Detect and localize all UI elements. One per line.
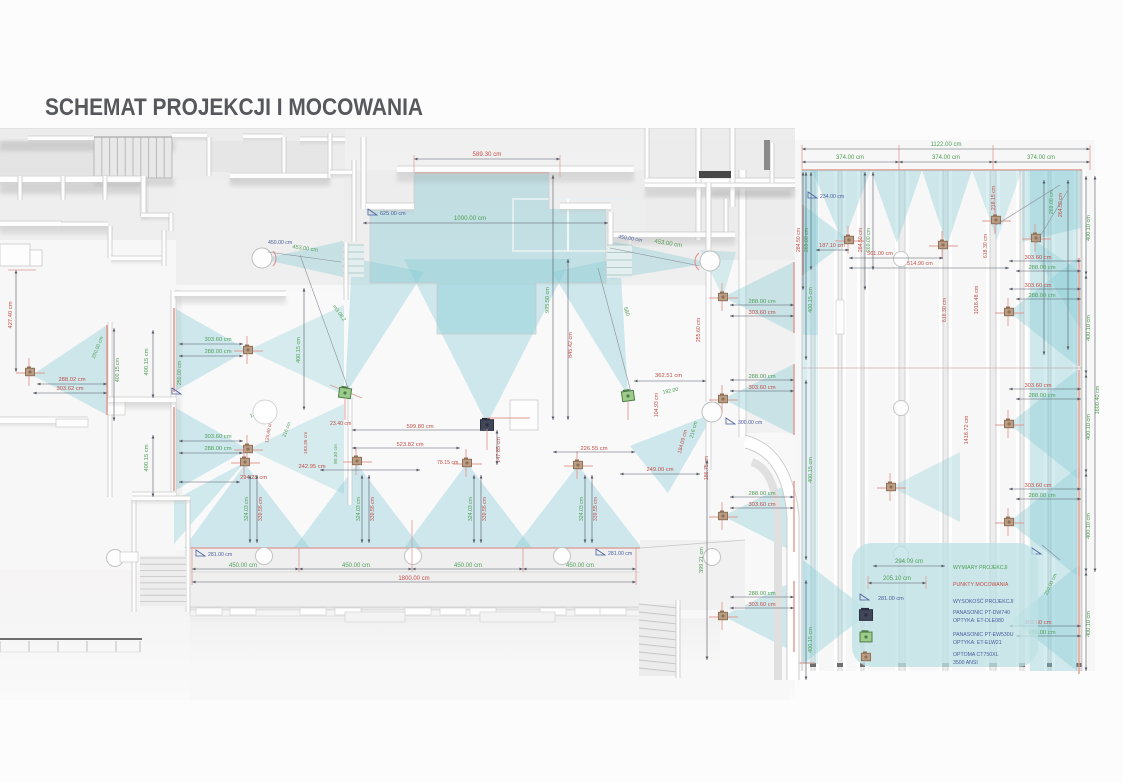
svg-text:104.93 cm: 104.93 cm	[654, 393, 660, 417]
svg-text:362.51 cm: 362.51 cm	[655, 373, 682, 379]
svg-text:599.80 cm: 599.80 cm	[406, 424, 433, 430]
svg-text:303.60 cm: 303.60 cm	[204, 434, 231, 440]
svg-text:205.10 cm: 205.10 cm	[883, 576, 911, 582]
svg-text:303.60 cm: 303.60 cm	[1024, 255, 1051, 261]
svg-text:294.25 cm: 294.25 cm	[240, 475, 267, 481]
svg-text:PANASONIC PT-DW740: PANASONIC PT-DW740	[953, 610, 1010, 616]
svg-text:450.00 cm: 450.00 cm	[454, 563, 482, 569]
svg-text:288.00 cm: 288.00 cm	[1028, 493, 1055, 499]
svg-text:218.15 cm: 218.15 cm	[991, 186, 997, 210]
svg-text:1000.00 cm: 1000.00 cm	[454, 215, 486, 222]
svg-text:450.00 cm: 450.00 cm	[566, 563, 594, 569]
svg-text:303.60 cm: 303.60 cm	[748, 502, 775, 508]
svg-text:288.00 cm: 288.00 cm	[1028, 265, 1055, 271]
svg-text:1418.72 cm: 1418.72 cm	[964, 415, 970, 444]
svg-text:400.15 cm: 400.15 cm	[296, 337, 302, 363]
svg-text:400.10 cm: 400.10 cm	[1086, 513, 1092, 539]
svg-text:288.00 cm: 288.00 cm	[748, 374, 775, 380]
svg-text:400.15 cm: 400.15 cm	[144, 444, 150, 471]
svg-text:269.00 cm: 269.00 cm	[804, 228, 810, 252]
svg-text:1018.48 cm: 1018.48 cm	[974, 285, 980, 314]
svg-text:234.00 cm: 234.00 cm	[820, 194, 844, 200]
svg-text:288.00 cm: 288.00 cm	[748, 591, 775, 597]
svg-text:281.00 cm: 281.00 cm	[608, 551, 632, 557]
svg-text:284.50 cm: 284.50 cm	[858, 228, 864, 252]
svg-text:PANASONIC PT-EW530U: PANASONIC PT-EW530U	[953, 632, 1014, 638]
svg-text:303.60 cm: 303.60 cm	[748, 385, 775, 391]
svg-text:374.00 cm: 374.00 cm	[836, 155, 864, 161]
svg-text:23.40 cm: 23.40 cm	[330, 421, 351, 427]
svg-text:324.03 cm: 324.03 cm	[244, 497, 250, 521]
svg-text:281.00 cm: 281.00 cm	[208, 552, 232, 558]
svg-text:303.60 cm: 303.60 cm	[1024, 483, 1051, 489]
svg-text:300.00 cm: 300.00 cm	[738, 420, 762, 426]
svg-text:324.03 cm: 324.03 cm	[579, 497, 585, 521]
svg-text:450.00 cm: 450.00 cm	[268, 240, 292, 246]
svg-text:OPTOMA CT750XL: OPTOMA CT750XL	[953, 652, 999, 658]
svg-text:303.60 cm: 303.60 cm	[748, 310, 775, 316]
svg-text:339.55 cm: 339.55 cm	[593, 497, 599, 521]
svg-text:281.00 cm: 281.00 cm	[878, 596, 904, 602]
svg-text:250.00 cm: 250.00 cm	[177, 361, 183, 385]
svg-text:625.00 cm: 625.00 cm	[380, 211, 406, 217]
svg-text:324.03 cm: 324.03 cm	[468, 497, 474, 521]
svg-text:183.35 cm: 183.35 cm	[303, 432, 309, 454]
svg-text:374.00 cm: 374.00 cm	[932, 155, 960, 161]
svg-text:80.30 cm: 80.30 cm	[333, 444, 339, 464]
svg-text:288.00 cm: 288.00 cm	[1028, 393, 1055, 399]
svg-text:303.62 cm: 303.62 cm	[56, 386, 83, 392]
svg-text:589.30 cm: 589.30 cm	[473, 151, 502, 158]
svg-text:845.42 cm: 845.42 cm	[568, 332, 574, 358]
svg-text:303.60 cm: 303.60 cm	[1024, 283, 1051, 289]
svg-text:288.00 cm: 288.00 cm	[748, 299, 775, 305]
svg-text:284.50 cm: 284.50 cm	[796, 228, 802, 252]
svg-text:1800.00 cm: 1800.00 cm	[398, 576, 429, 582]
svg-text:400.15 cm: 400.15 cm	[808, 457, 814, 483]
svg-text:427.40 cm: 427.40 cm	[8, 301, 14, 328]
svg-text:523.82 cm: 523.82 cm	[396, 442, 423, 448]
svg-text:400.15 cm: 400.15 cm	[808, 627, 814, 653]
svg-text:249.00 cm: 249.00 cm	[646, 467, 673, 473]
svg-text:339.55 cm: 339.55 cm	[482, 497, 488, 521]
svg-text:OPTYKA: ET-ELW21: OPTYKA: ET-ELW21	[953, 640, 1002, 646]
svg-text:339.55 cm: 339.55 cm	[370, 497, 376, 521]
svg-text:400.10 cm: 400.10 cm	[1086, 414, 1092, 440]
svg-text:450.00 cm: 450.00 cm	[229, 563, 257, 569]
svg-text:618.30 cm: 618.30 cm	[983, 234, 989, 258]
svg-text:288.00 cm: 288.00 cm	[748, 491, 775, 497]
svg-text:288.00 cm: 288.00 cm	[204, 446, 231, 452]
svg-text:288.00 cm: 288.00 cm	[1028, 293, 1055, 299]
svg-text:303.60 cm: 303.60 cm	[1024, 383, 1051, 389]
svg-text:450.00 cm: 450.00 cm	[342, 563, 370, 569]
svg-text:OPTYKA: ET-DLE080: OPTYKA: ET-DLE080	[953, 618, 1004, 624]
svg-text:3500 ANSI: 3500 ANSI	[953, 660, 978, 666]
svg-text:400.15 cm: 400.15 cm	[115, 358, 121, 382]
svg-text:269.00 cm: 269.00 cm	[866, 228, 872, 252]
svg-text:324.03 cm: 324.03 cm	[356, 497, 362, 521]
svg-text:288.00 cm: 288.00 cm	[204, 349, 231, 355]
svg-text:1600.40 cm: 1600.40 cm	[1095, 385, 1101, 414]
svg-text:514.90 cm: 514.90 cm	[907, 261, 933, 267]
svg-text:294.09 cm: 294.09 cm	[895, 559, 923, 565]
svg-text:400.10 cm: 400.10 cm	[1086, 315, 1092, 341]
svg-text:226.55 cm: 226.55 cm	[580, 446, 607, 452]
svg-text:400.10 cm: 400.10 cm	[1086, 215, 1092, 241]
svg-text:561.00 cm: 561.00 cm	[867, 251, 893, 257]
svg-text:242.95 cm: 242.95 cm	[298, 464, 325, 470]
svg-text:187.10 cm: 187.10 cm	[819, 243, 845, 249]
svg-text:78.15 cm: 78.15 cm	[437, 460, 458, 466]
svg-text:374.00 cm: 374.00 cm	[1027, 155, 1055, 161]
svg-text:400.15 cm: 400.15 cm	[144, 348, 150, 375]
svg-text:339.55 cm: 339.55 cm	[258, 497, 264, 521]
svg-text:1122.00 cm: 1122.00 cm	[931, 142, 962, 148]
svg-text:400.10 cm: 400.10 cm	[1086, 611, 1092, 637]
svg-text:269.00 cm: 269.00 cm	[1049, 190, 1055, 214]
svg-text:616.30 cm: 616.30 cm	[942, 298, 948, 322]
svg-text:WYMIARY PROJEKCJI: WYMIARY PROJEKCJI	[953, 565, 1008, 571]
svg-text:SCHEMAT PROJEKCJI I MOCOWANIA: SCHEMAT PROJEKCJI I MOCOWANIA	[45, 94, 423, 121]
svg-text:303.60 cm: 303.60 cm	[748, 602, 775, 608]
svg-text:399.21 cm: 399.21 cm	[699, 547, 705, 573]
svg-text:WYSOKOŚĆ PROJEKCJI: WYSOKOŚĆ PROJEKCJI	[953, 597, 1014, 605]
svg-text:995.50 cm: 995.50 cm	[545, 287, 551, 313]
svg-text:288.02 cm: 288.02 cm	[58, 377, 85, 383]
svg-text:255.60 cm: 255.60 cm	[696, 318, 702, 342]
svg-text:PUNKTY MOCOWANIA: PUNKTY MOCOWANIA	[953, 582, 1009, 588]
svg-text:400.15 cm: 400.15 cm	[808, 287, 814, 313]
svg-text:303.60 cm: 303.60 cm	[204, 337, 231, 343]
